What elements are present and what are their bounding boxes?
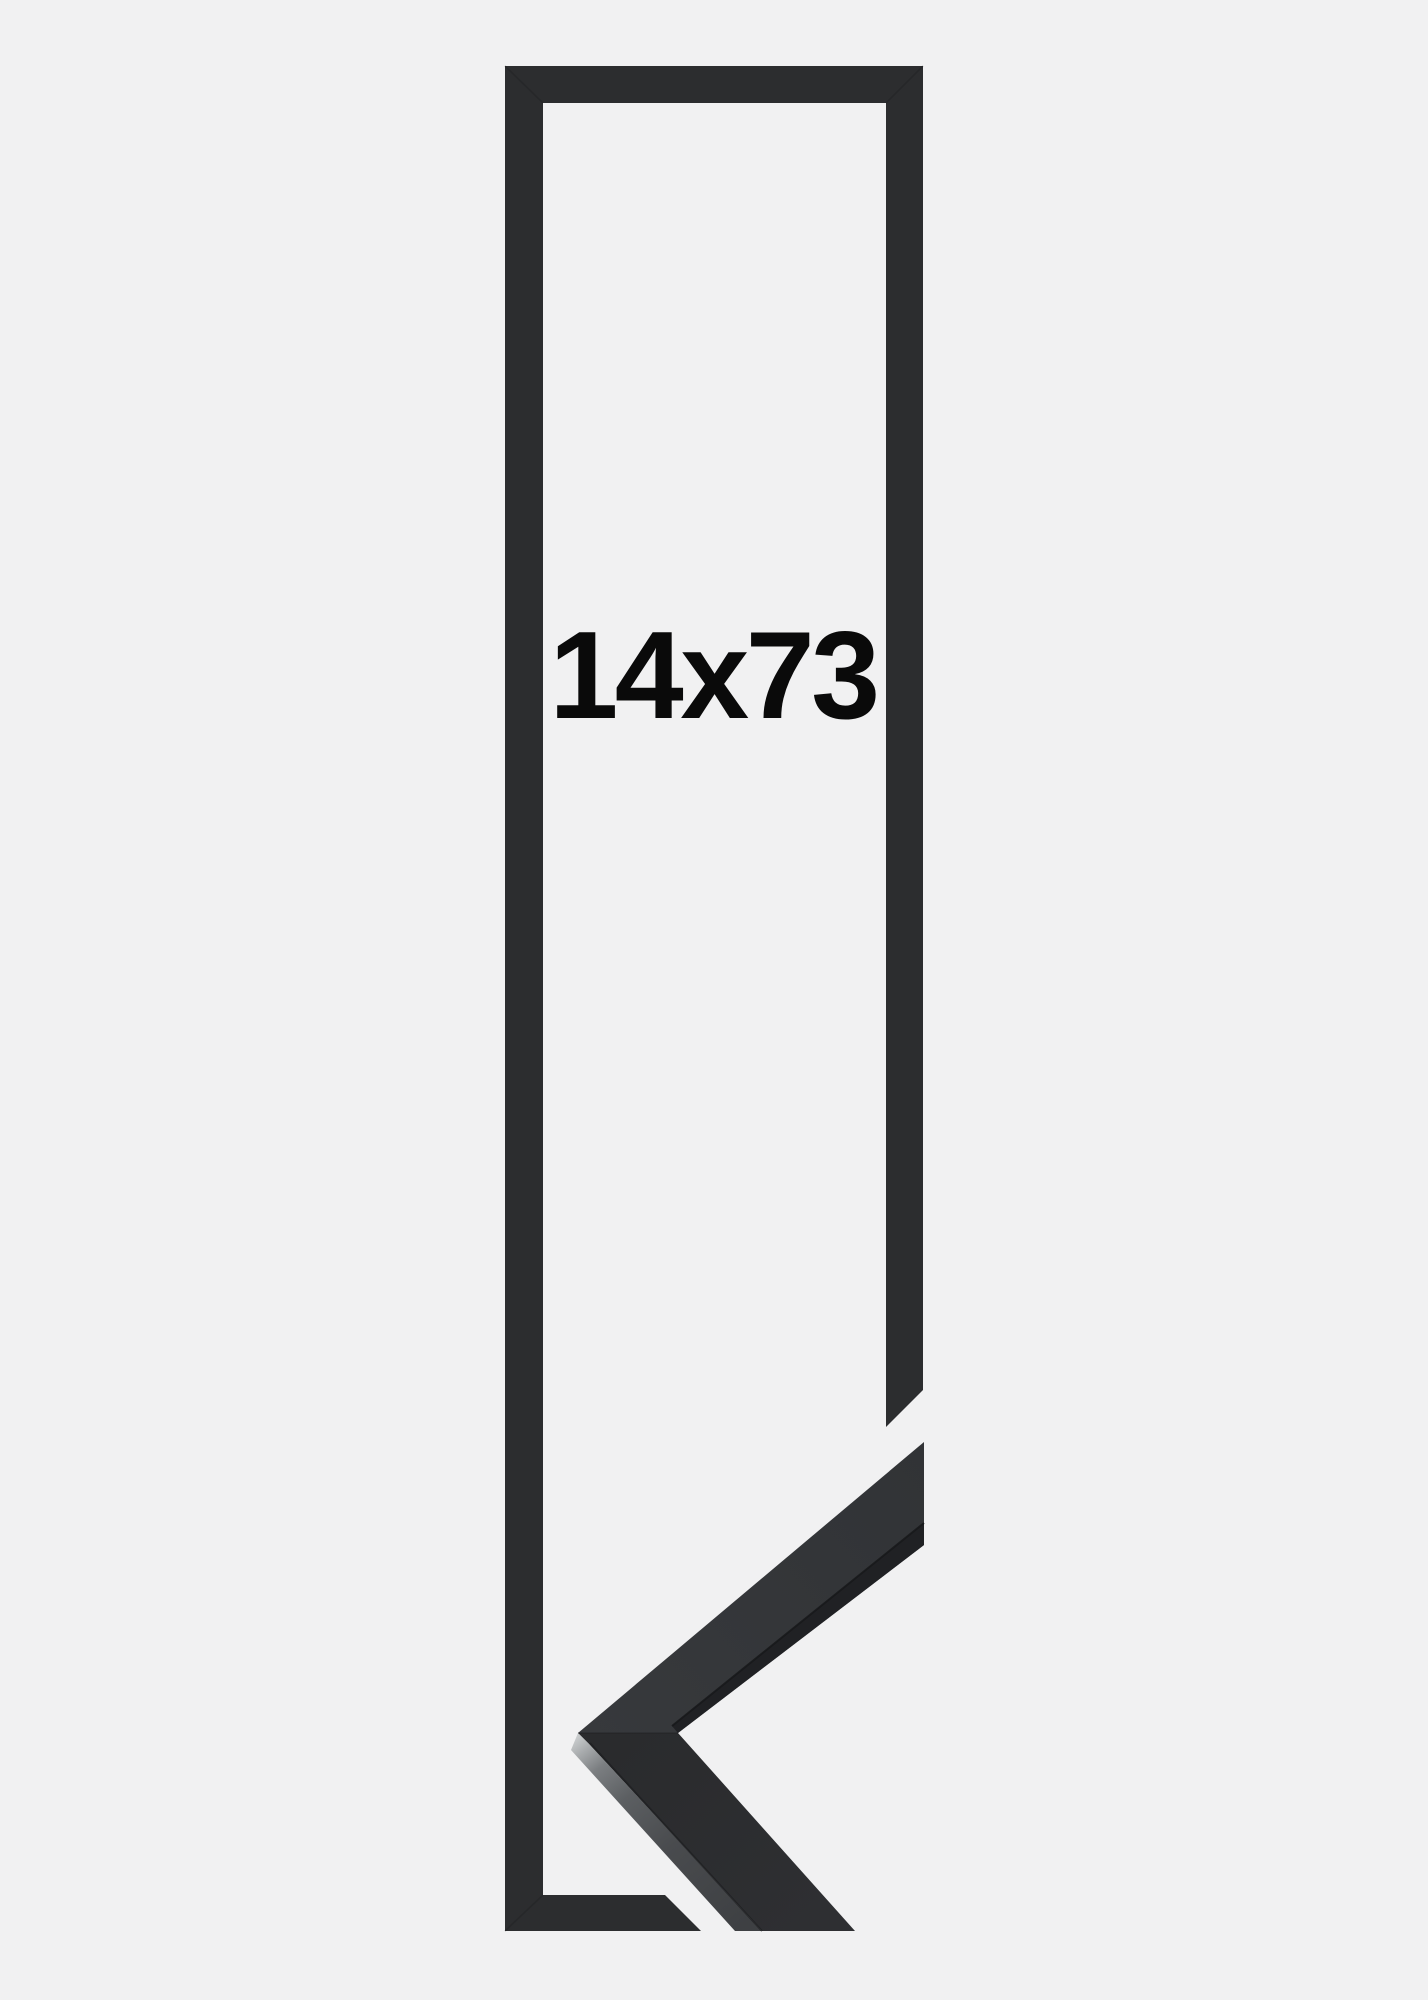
frame-top-bar xyxy=(505,66,923,103)
frame-right-bar xyxy=(886,66,923,1427)
size-label: 14x73 xyxy=(549,607,876,745)
frame-left-bar xyxy=(505,66,543,1931)
frame-product-image: 14x73 xyxy=(0,0,1428,2000)
